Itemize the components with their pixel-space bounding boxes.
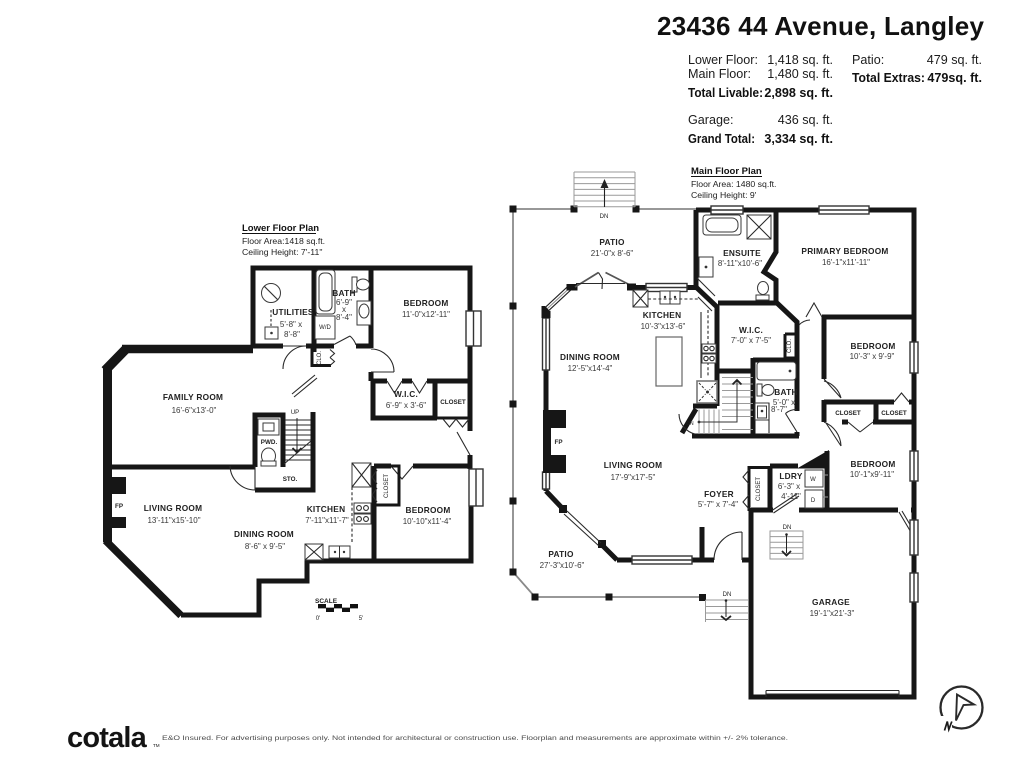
svg-text:4'-11": 4'-11"	[781, 492, 801, 501]
svg-text:DINING ROOM: DINING ROOM	[560, 352, 620, 362]
svg-text:5': 5'	[359, 616, 363, 622]
svg-text:CLOSET: CLOSET	[440, 399, 466, 406]
svg-text:13'-11"x15'-10": 13'-11"x15'-10"	[147, 516, 200, 525]
svg-text:W/D: W/D	[319, 325, 331, 331]
svg-text:23436 44 Avenue, Langley: 23436 44 Avenue, Langley	[657, 11, 985, 41]
svg-text:7'-0" x 7'-5": 7'-0" x 7'-5"	[731, 336, 771, 345]
svg-text:CLOSET: CLOSET	[384, 474, 390, 498]
svg-text:FP: FP	[115, 503, 123, 510]
svg-text:LDRY: LDRY	[779, 471, 802, 481]
svg-text:10'-3" x 9'-9": 10'-3" x 9'-9"	[850, 352, 895, 361]
svg-text:Patio:: Patio:	[852, 53, 884, 67]
svg-text:BATH: BATH	[774, 387, 797, 397]
svg-text:ENSUITE: ENSUITE	[723, 248, 761, 258]
svg-text:436 sq. ft.: 436 sq. ft.	[778, 113, 833, 127]
svg-text:Ceiling Height: 7'-11": Ceiling Height: 7'-11"	[242, 247, 322, 257]
svg-text:27'-3"x10'-6": 27'-3"x10'-6"	[540, 561, 585, 570]
svg-text:BEDROOM: BEDROOM	[403, 298, 448, 308]
svg-text:Total Livable:: Total Livable:	[688, 86, 763, 100]
svg-text:10'-1"x9'-11": 10'-1"x9'-11"	[850, 470, 894, 479]
svg-text:CLOSET: CLOSET	[835, 410, 861, 417]
svg-text:DN: DN	[723, 592, 732, 598]
svg-text:8'-11"x10'-6": 8'-11"x10'-6"	[718, 259, 762, 268]
svg-text:19'-1"x21'-3": 19'-1"x21'-3"	[810, 609, 855, 618]
svg-text:Floor Area: 1480 sq.ft.: Floor Area: 1480 sq.ft.	[691, 179, 776, 189]
svg-text:3,334 sq. ft.: 3,334 sq. ft.	[764, 132, 833, 146]
svg-text:DN: DN	[783, 525, 792, 531]
svg-text:Lower Floor Plan: Lower Floor Plan	[242, 223, 319, 234]
svg-text:BATH: BATH	[332, 288, 355, 298]
svg-text:PRIMARY BEDROOM: PRIMARY BEDROOM	[801, 246, 888, 256]
svg-text:10'-3"x13'-6": 10'-3"x13'-6"	[641, 322, 686, 331]
svg-text:0': 0'	[316, 616, 320, 622]
svg-text:8'-8": 8'-8"	[284, 330, 300, 339]
svg-text:CLO.: CLO.	[317, 351, 323, 365]
svg-text:KITCHEN: KITCHEN	[307, 504, 346, 514]
svg-text:BEDROOM: BEDROOM	[405, 505, 450, 515]
svg-text:STO.: STO.	[283, 476, 298, 483]
svg-text:DN: DN	[600, 214, 609, 220]
svg-text:479 sq. ft.: 479 sq. ft.	[927, 53, 982, 67]
svg-text:5'-7" x 7'-4": 5'-7" x 7'-4"	[698, 500, 738, 509]
svg-text:21'-0"x 8'-6": 21'-0"x 8'-6"	[591, 249, 634, 258]
svg-text:FOYER: FOYER	[704, 489, 734, 499]
svg-text:LIVING ROOM: LIVING ROOM	[604, 460, 663, 470]
svg-text:Main Floor:: Main Floor:	[688, 67, 751, 81]
svg-text:Main Floor Plan: Main Floor Plan	[691, 166, 762, 177]
svg-text:W.I.C.: W.I.C.	[739, 325, 763, 335]
svg-text:Total Extras:: Total Extras:	[852, 71, 925, 85]
svg-text:D: D	[811, 498, 816, 504]
svg-text:16'-6"x13'-0": 16'-6"x13'-0"	[172, 406, 217, 415]
svg-text:11'-0"x12'-11": 11'-0"x12'-11"	[402, 310, 450, 319]
svg-text:16'-1"x11'-11": 16'-1"x11'-11"	[822, 258, 870, 267]
svg-text:10'-10"x11'-4": 10'-10"x11'-4"	[403, 517, 452, 526]
svg-text:17'-9"x17'-5": 17'-9"x17'-5"	[611, 473, 656, 482]
svg-text:PWD.: PWD.	[261, 439, 278, 446]
svg-text:DINING ROOM: DINING ROOM	[234, 529, 294, 539]
svg-text:LIVING ROOM: LIVING ROOM	[144, 503, 203, 513]
svg-text:Grand Total:: Grand Total:	[688, 132, 755, 146]
svg-text:1,418 sq. ft.: 1,418 sq. ft.	[767, 53, 833, 67]
svg-text:SCALE: SCALE	[315, 598, 338, 605]
svg-text:W.I.C.: W.I.C.	[394, 389, 418, 399]
svg-text:12'-5"x14'-4": 12'-5"x14'-4"	[568, 364, 613, 373]
svg-text:FAMILY ROOM: FAMILY ROOM	[163, 392, 223, 402]
svg-text:2,898 sq. ft.: 2,898 sq. ft.	[764, 86, 833, 100]
svg-text:UTILITIES: UTILITIES	[272, 307, 314, 317]
svg-text:Lower Floor:: Lower Floor:	[688, 53, 758, 67]
svg-text:Garage:: Garage:	[688, 113, 734, 127]
svg-text:7'-11"x11'-7": 7'-11"x11'-7"	[305, 516, 349, 525]
svg-text:FP: FP	[554, 439, 562, 446]
svg-text:8'-7": 8'-7"	[771, 405, 787, 414]
svg-text:PATIO: PATIO	[599, 237, 625, 247]
svg-text:CLOSET: CLOSET	[756, 477, 762, 501]
svg-text:DN: DN	[686, 421, 694, 427]
svg-text:6'-9" x 3'-6": 6'-9" x 3'-6"	[386, 401, 426, 410]
svg-text:E&O Insured. For advertising p: E&O Insured. For advertising purposes on…	[162, 735, 788, 742]
svg-text:BEDROOM: BEDROOM	[850, 459, 895, 469]
svg-text:5'-8" x: 5'-8" x	[280, 320, 302, 329]
svg-text:479sq. ft.: 479sq. ft.	[927, 71, 982, 85]
svg-text:BEDROOM: BEDROOM	[850, 341, 895, 351]
svg-text:1,480 sq. ft.: 1,480 sq. ft.	[767, 67, 833, 81]
svg-text:CLO.: CLO.	[787, 339, 793, 353]
svg-text:PATIO: PATIO	[548, 549, 574, 559]
svg-text:CLOSET: CLOSET	[881, 410, 907, 417]
svg-text:8'-6" x 9'-5": 8'-6" x 9'-5"	[245, 542, 285, 551]
svg-text:KITCHEN: KITCHEN	[643, 310, 682, 320]
svg-text:GARAGE: GARAGE	[812, 597, 850, 607]
svg-text:Ceiling Height: 9': Ceiling Height: 9'	[691, 190, 757, 200]
svg-text:8'-4": 8'-4"	[336, 313, 352, 322]
svg-text:Floor Area:1418 sq.ft.: Floor Area:1418 sq.ft.	[242, 236, 325, 246]
svg-text:W: W	[810, 477, 816, 483]
svg-text:6'-3" x: 6'-3" x	[778, 482, 800, 491]
svg-text:cotala: cotala	[67, 722, 148, 754]
svg-text:UP: UP	[291, 410, 299, 416]
svg-text:TM: TM	[153, 743, 160, 748]
